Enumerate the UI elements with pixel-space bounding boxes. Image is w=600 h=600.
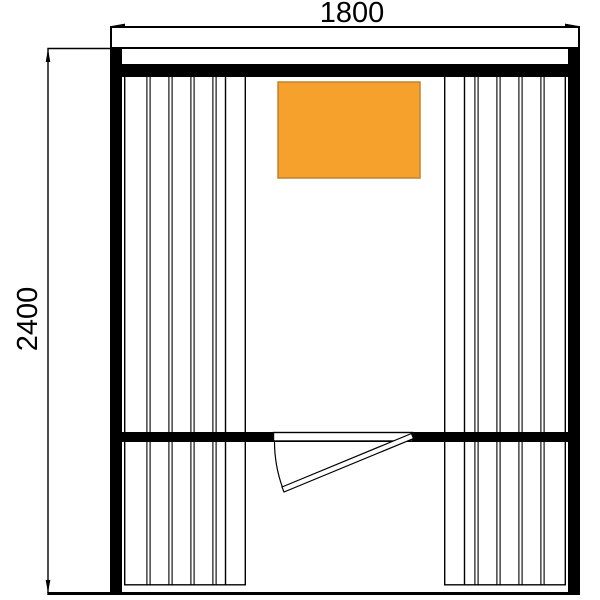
technical-drawing-page: 1800 2400 (0, 0, 600, 600)
right-wall (568, 48, 580, 595)
height-dimension: 2400 (12, 49, 111, 594)
top-wall-bar (122, 64, 568, 77)
door-leaf (282, 434, 414, 493)
right-panel-section (444, 77, 566, 586)
bottom-edge-line (47, 592, 580, 595)
dimension-arrow-up-icon (46, 49, 51, 62)
panel-edge-lines (124, 77, 246, 586)
top-frame-band (111, 27, 579, 48)
width-dimension-label: 1800 (320, 0, 385, 29)
left-panel-section (124, 77, 246, 586)
door-frame (274, 433, 413, 442)
heater (278, 82, 420, 178)
height-dimension-label: 2400 (12, 287, 44, 352)
width-dimension: 1800 (112, 0, 579, 29)
panel-slat-lines (147, 77, 216, 586)
door-swing-arc (275, 442, 283, 488)
panel-slat-lines (475, 77, 544, 586)
sauna-plan-drawing: 1800 2400 (0, 0, 600, 600)
left-wall (110, 48, 122, 595)
panel-edge-lines (444, 77, 566, 586)
dimension-arrow-down-icon (46, 580, 51, 593)
